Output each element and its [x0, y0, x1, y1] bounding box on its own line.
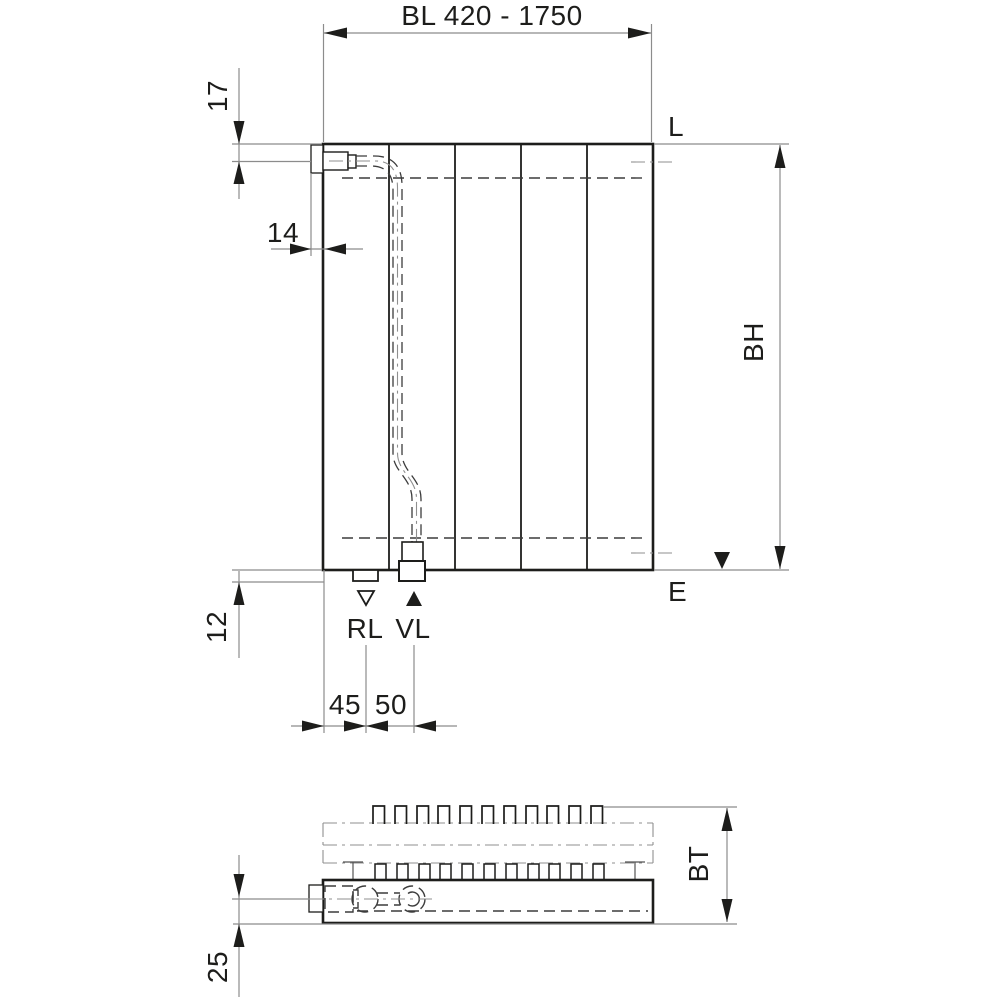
convector-fins-lower — [375, 864, 604, 881]
front-panel — [323, 880, 653, 923]
radiator-technical-drawing: BL 420 - 1750 L E BH — [0, 0, 1000, 1000]
dim-50-label: 50 — [375, 689, 407, 720]
dim-bt-label: BT — [683, 846, 714, 883]
arrowhead-left-icon — [414, 721, 436, 732]
radiator-body — [323, 144, 653, 570]
arrowhead-down-icon — [722, 899, 733, 922]
arrowhead-up-icon — [775, 145, 786, 168]
level-bottom-label: E — [668, 576, 687, 607]
arrowhead-right-icon — [344, 721, 366, 732]
return-flow-icon — [358, 591, 374, 605]
arrowhead-left-icon — [366, 721, 388, 732]
level-top-label: L — [668, 111, 684, 142]
supply-label: VL — [395, 613, 430, 644]
arrowhead-right-icon — [628, 28, 651, 39]
arrowhead-right-icon — [302, 721, 324, 732]
dim-bl-label: BL 420 - 1750 — [401, 0, 582, 31]
dim-45-label: 45 — [329, 689, 361, 720]
arrowhead-down-icon — [234, 874, 245, 897]
arrowhead-up-icon — [234, 924, 245, 947]
arrowhead-down-icon — [234, 121, 245, 144]
dim-bh-label: BH — [738, 322, 769, 362]
dim-12-label: 12 — [201, 611, 232, 643]
datum-level-icon — [714, 552, 730, 569]
wall-bracket — [311, 145, 323, 173]
arrowhead-left-icon — [324, 28, 347, 39]
dim-14-label: 14 — [267, 217, 299, 248]
arrowhead-up-icon — [722, 808, 733, 831]
drawing-canvas: BL 420 - 1750 L E BH — [0, 0, 1000, 1000]
arrowhead-up-icon — [234, 582, 245, 605]
supply-fitting — [402, 542, 423, 561]
front-view: BL 420 - 1750 L E BH — [201, 0, 789, 733]
convector-fins-top — [373, 806, 603, 824]
dim-17-label: 17 — [202, 80, 233, 112]
supply-stub — [399, 561, 425, 581]
return-stub — [353, 570, 378, 581]
arrowhead-up-icon — [234, 162, 245, 185]
return-label: RL — [347, 613, 384, 644]
dim-25-label: 25 — [202, 951, 233, 983]
plan-view: BT 25 — [202, 806, 737, 997]
arrowhead-down-icon — [775, 546, 786, 569]
supply-flow-icon — [406, 591, 422, 606]
